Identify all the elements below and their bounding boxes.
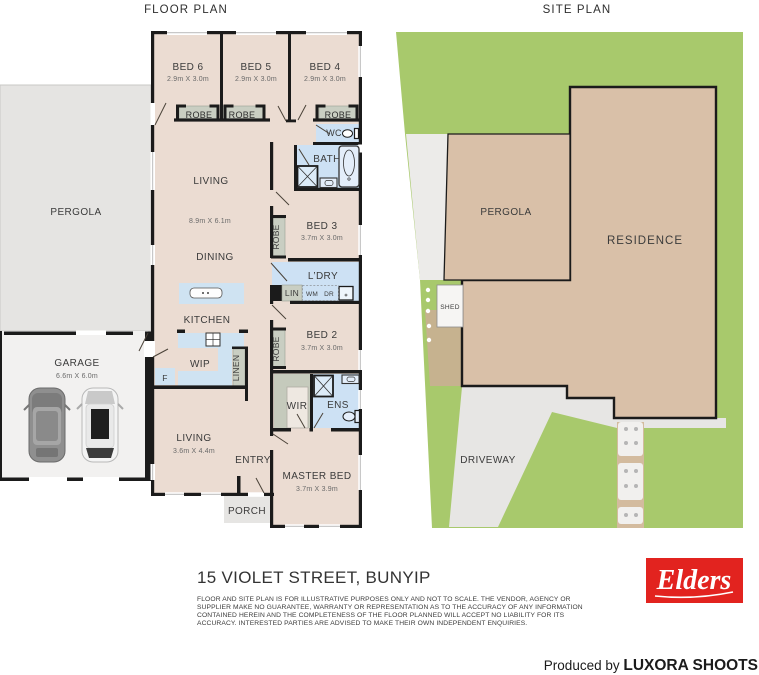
svg-text:LIVING: LIVING <box>193 176 228 187</box>
svg-text:WIP: WIP <box>190 359 210 370</box>
svg-text:PERGOLA: PERGOLA <box>480 207 531 218</box>
svg-text:SITE PLAN: SITE PLAN <box>543 4 612 16</box>
svg-text:FLOOR PLAN: FLOOR PLAN <box>144 4 228 16</box>
svg-text:15 VIOLET STREET, BUNYIP: 15 VIOLET STREET, BUNYIP <box>197 568 431 587</box>
svg-text:ENTRY: ENTRY <box>235 455 271 466</box>
svg-text:WIR: WIR <box>287 401 308 412</box>
svg-text:LIN: LIN <box>285 288 299 298</box>
svg-text:DRIVEWAY: DRIVEWAY <box>460 455 515 466</box>
svg-text:RESIDENCE: RESIDENCE <box>607 235 683 247</box>
svg-text:WC: WC <box>326 128 342 138</box>
svg-text:BED 2: BED 2 <box>307 330 338 341</box>
svg-text:DR: DR <box>324 291 334 298</box>
svg-text:WM: WM <box>306 291 318 298</box>
svg-text:6.6m X 6.0m: 6.6m X 6.0m <box>56 373 98 380</box>
svg-text:DINING: DINING <box>196 252 233 263</box>
svg-text:CONTAINED HEREIN AND THE COMPL: CONTAINED HEREIN AND THE COMPLETENESS OF… <box>197 612 565 619</box>
svg-text:LINEN: LINEN <box>231 355 241 382</box>
svg-text:BATH: BATH <box>313 154 341 165</box>
svg-text:3.7m X 3.9m: 3.7m X 3.9m <box>296 486 338 493</box>
svg-text:KITCHEN: KITCHEN <box>184 315 231 326</box>
svg-text:BED 3: BED 3 <box>307 221 338 232</box>
svg-text:SUPPLIER MAKE NO GUARANTEE, WA: SUPPLIER MAKE NO GUARANTEE, WARRANTY OR … <box>197 604 583 611</box>
svg-text:SHED: SHED <box>440 304 460 311</box>
svg-text:8.9m X 6.1m: 8.9m X 6.1m <box>189 218 231 225</box>
svg-text:2.9m X 3.0m: 2.9m X 3.0m <box>167 76 209 83</box>
svg-text:LIVING: LIVING <box>176 433 211 444</box>
svg-text:PORCH: PORCH <box>228 506 266 517</box>
svg-text:3.6m X 4.4m: 3.6m X 4.4m <box>173 448 215 455</box>
svg-text:3.7m X 3.0m: 3.7m X 3.0m <box>301 235 343 242</box>
svg-text:ACCURACY. INTERESTED PARTIES A: ACCURACY. INTERESTED PARTIES ARE ADVISED… <box>197 620 527 627</box>
svg-text:ENS: ENS <box>327 400 349 411</box>
svg-text:FLOOR AND SITE PLAN IS FOR ILL: FLOOR AND SITE PLAN IS FOR ILLUSTRATIVE … <box>197 596 571 603</box>
svg-text:GARAGE: GARAGE <box>54 358 99 369</box>
svg-text:BED 6: BED 6 <box>173 62 204 73</box>
svg-text:F: F <box>162 373 168 383</box>
svg-text:2.9m X 3.0m: 2.9m X 3.0m <box>304 76 346 83</box>
svg-text:L’DRY: L’DRY <box>308 271 338 282</box>
svg-text:MASTER BED: MASTER BED <box>282 471 351 482</box>
svg-text:PERGOLA: PERGOLA <box>50 207 101 218</box>
svg-text:3.7m X 3.0m: 3.7m X 3.0m <box>301 345 343 352</box>
svg-text:BED 5: BED 5 <box>241 62 272 73</box>
svg-text:Produced by LUXORA SHOOTS: Produced by LUXORA SHOOTS <box>544 657 758 674</box>
svg-text:BED 4: BED 4 <box>310 62 341 73</box>
svg-text:Elders: Elders <box>656 565 732 596</box>
svg-text:2.9m X 3.0m: 2.9m X 3.0m <box>235 76 277 83</box>
